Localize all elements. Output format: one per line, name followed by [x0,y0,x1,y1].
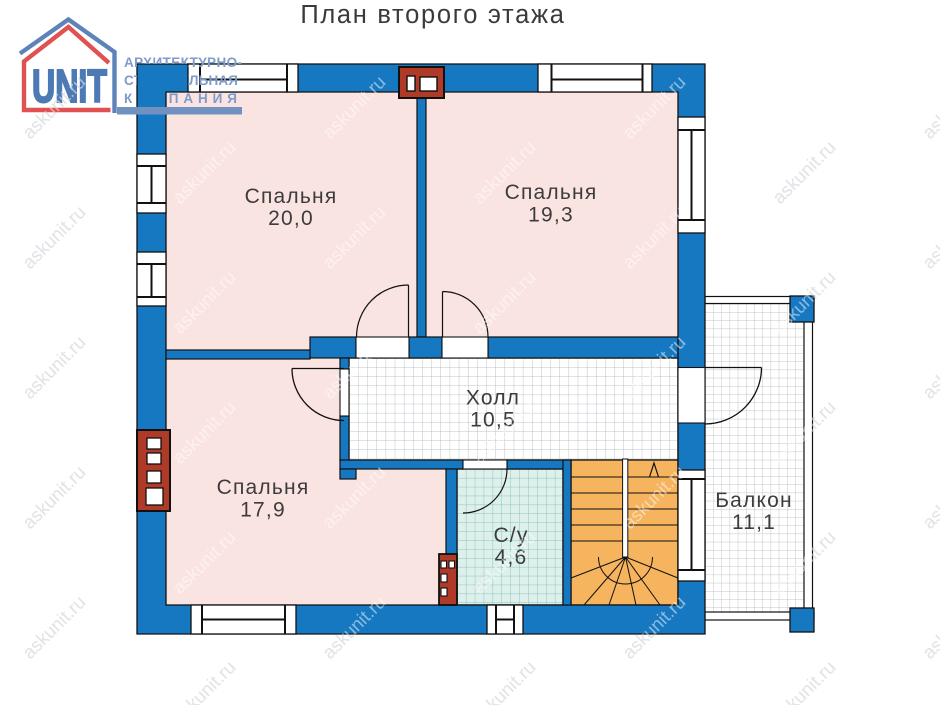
svg-text:Спальня: Спальня [505,181,598,204]
svg-text:Спальня: Спальня [245,185,338,208]
svg-text:План второго этажа: План второго этажа [300,1,565,29]
svg-text:17,9: 17,9 [240,499,286,522]
svg-text:19,3: 19,3 [528,204,574,227]
svg-text:11,1: 11,1 [732,511,776,534]
svg-text:Балкон: Балкон [715,489,793,512]
svg-text:20,0: 20,0 [268,207,314,230]
svg-text:Спальня: Спальня [217,476,310,499]
svg-text:Холл: Холл [466,387,520,410]
